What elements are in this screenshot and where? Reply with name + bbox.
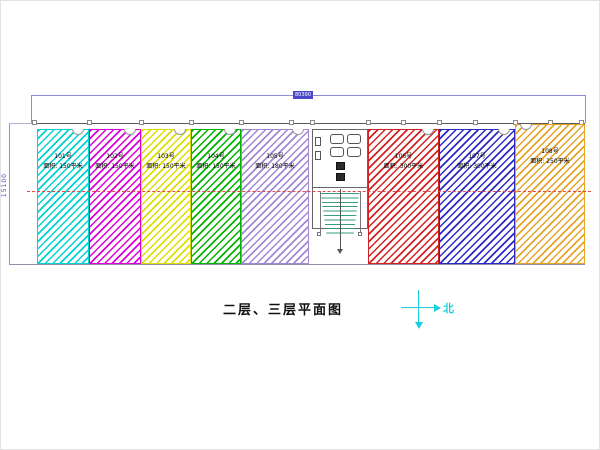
bottom-wall — [9, 264, 585, 265]
unit-area: 面积: 250平米 — [516, 157, 584, 167]
unit-label: 108号面积: 250平米 — [516, 147, 584, 167]
entrance-notch — [72, 129, 84, 135]
unit-number: 101号 — [38, 152, 88, 162]
unit-label: 107号面积: 300平米 — [440, 152, 514, 172]
unit-area: 面积: 300平米 — [369, 162, 438, 172]
wc-fixture — [315, 137, 321, 146]
floor-plan-drawing: 80390 15100 二层、三层平面图 北 101号面积: 150平米102号… — [0, 0, 600, 450]
top-dimension-witness-left — [31, 95, 32, 123]
column-mark — [239, 120, 244, 125]
entrance-notch — [498, 129, 510, 135]
entrance-notch — [124, 129, 136, 135]
unit-area: 面积: 150平米 — [90, 162, 140, 172]
top-dimension-witness-right — [585, 95, 586, 123]
unit-region: 104号面积: 150平米 — [191, 129, 241, 264]
column-mark — [289, 120, 294, 125]
column-mark — [189, 120, 194, 125]
left-dimension-line — [9, 123, 10, 264]
column-mark — [437, 120, 442, 125]
wc-stall — [330, 134, 344, 144]
unit-area: 面积: 300平米 — [440, 162, 514, 172]
shaft-block — [336, 173, 345, 181]
entrance-notch — [174, 129, 186, 135]
unit-label: 106号面积: 300平米 — [369, 152, 438, 172]
left-dimension-connector — [9, 123, 34, 124]
stair-rail-foot — [358, 232, 362, 236]
total-height-dimension: 15100 — [1, 173, 8, 197]
column-mark — [32, 120, 37, 125]
core-divider-line — [312, 187, 368, 188]
unit-label: 105号面积: 180平米 — [242, 152, 308, 172]
entrance-notch — [292, 129, 304, 135]
unit-number: 103号 — [142, 152, 190, 162]
unit-region: 107号面积: 300平米 — [439, 129, 515, 264]
entrance-notch — [520, 124, 532, 130]
unit-area: 面积: 150平米 — [192, 162, 240, 172]
column-mark — [366, 120, 371, 125]
wc-stall — [347, 147, 361, 157]
column-mark — [87, 120, 92, 125]
entrance-notch — [422, 129, 434, 135]
unit-number: 105号 — [242, 152, 308, 162]
unit-number: 108号 — [516, 147, 584, 157]
plan-title: 二层、三层平面图 — [223, 299, 343, 318]
total-width-dimension: 80390 — [293, 91, 313, 99]
column-mark — [139, 120, 144, 125]
shaft-block — [336, 162, 345, 170]
column-mark — [473, 120, 478, 125]
unit-region: 105号面积: 180平米 — [241, 129, 309, 264]
stair-rail-foot — [317, 232, 321, 236]
column-mark — [401, 120, 406, 125]
unit-region: 108号面积: 250平米 — [515, 124, 585, 264]
unit-number: 106号 — [369, 152, 438, 162]
wc-fixture — [315, 151, 321, 160]
unit-label: 104号面积: 150平米 — [192, 152, 240, 172]
wc-stall — [330, 147, 344, 157]
north-indicator-vertical — [418, 290, 419, 322]
unit-number: 107号 — [440, 152, 514, 162]
entrance-notch — [224, 129, 236, 135]
unit-region: 102号面积: 150平米 — [89, 129, 141, 264]
unit-region: 101号面积: 150平米 — [37, 129, 89, 264]
unit-label: 103号面积: 150平米 — [142, 152, 190, 172]
stair-rail-left — [320, 191, 321, 233]
unit-region: 106号面积: 300平米 — [368, 129, 439, 264]
axis-centerline — [27, 191, 591, 192]
south-arrow-icon — [415, 322, 423, 329]
unit-area: 面积: 150平米 — [142, 162, 190, 172]
unit-number: 102号 — [90, 152, 140, 162]
unit-area: 面积: 150平米 — [38, 162, 88, 172]
stair-centerline — [340, 189, 341, 249]
wc-stall — [347, 134, 361, 144]
unit-number: 104号 — [192, 152, 240, 162]
north-label: 北 — [443, 300, 454, 316]
stair-rail-right — [360, 191, 361, 233]
column-mark — [310, 120, 315, 125]
north-arrow-icon — [434, 304, 441, 312]
unit-label: 102号面积: 150平米 — [90, 152, 140, 172]
stair-direction-arrow — [337, 249, 343, 254]
unit-area: 面积: 180平米 — [242, 162, 308, 172]
unit-label: 101号面积: 150平米 — [38, 152, 88, 172]
unit-region: 103号面积: 150平米 — [141, 129, 191, 264]
